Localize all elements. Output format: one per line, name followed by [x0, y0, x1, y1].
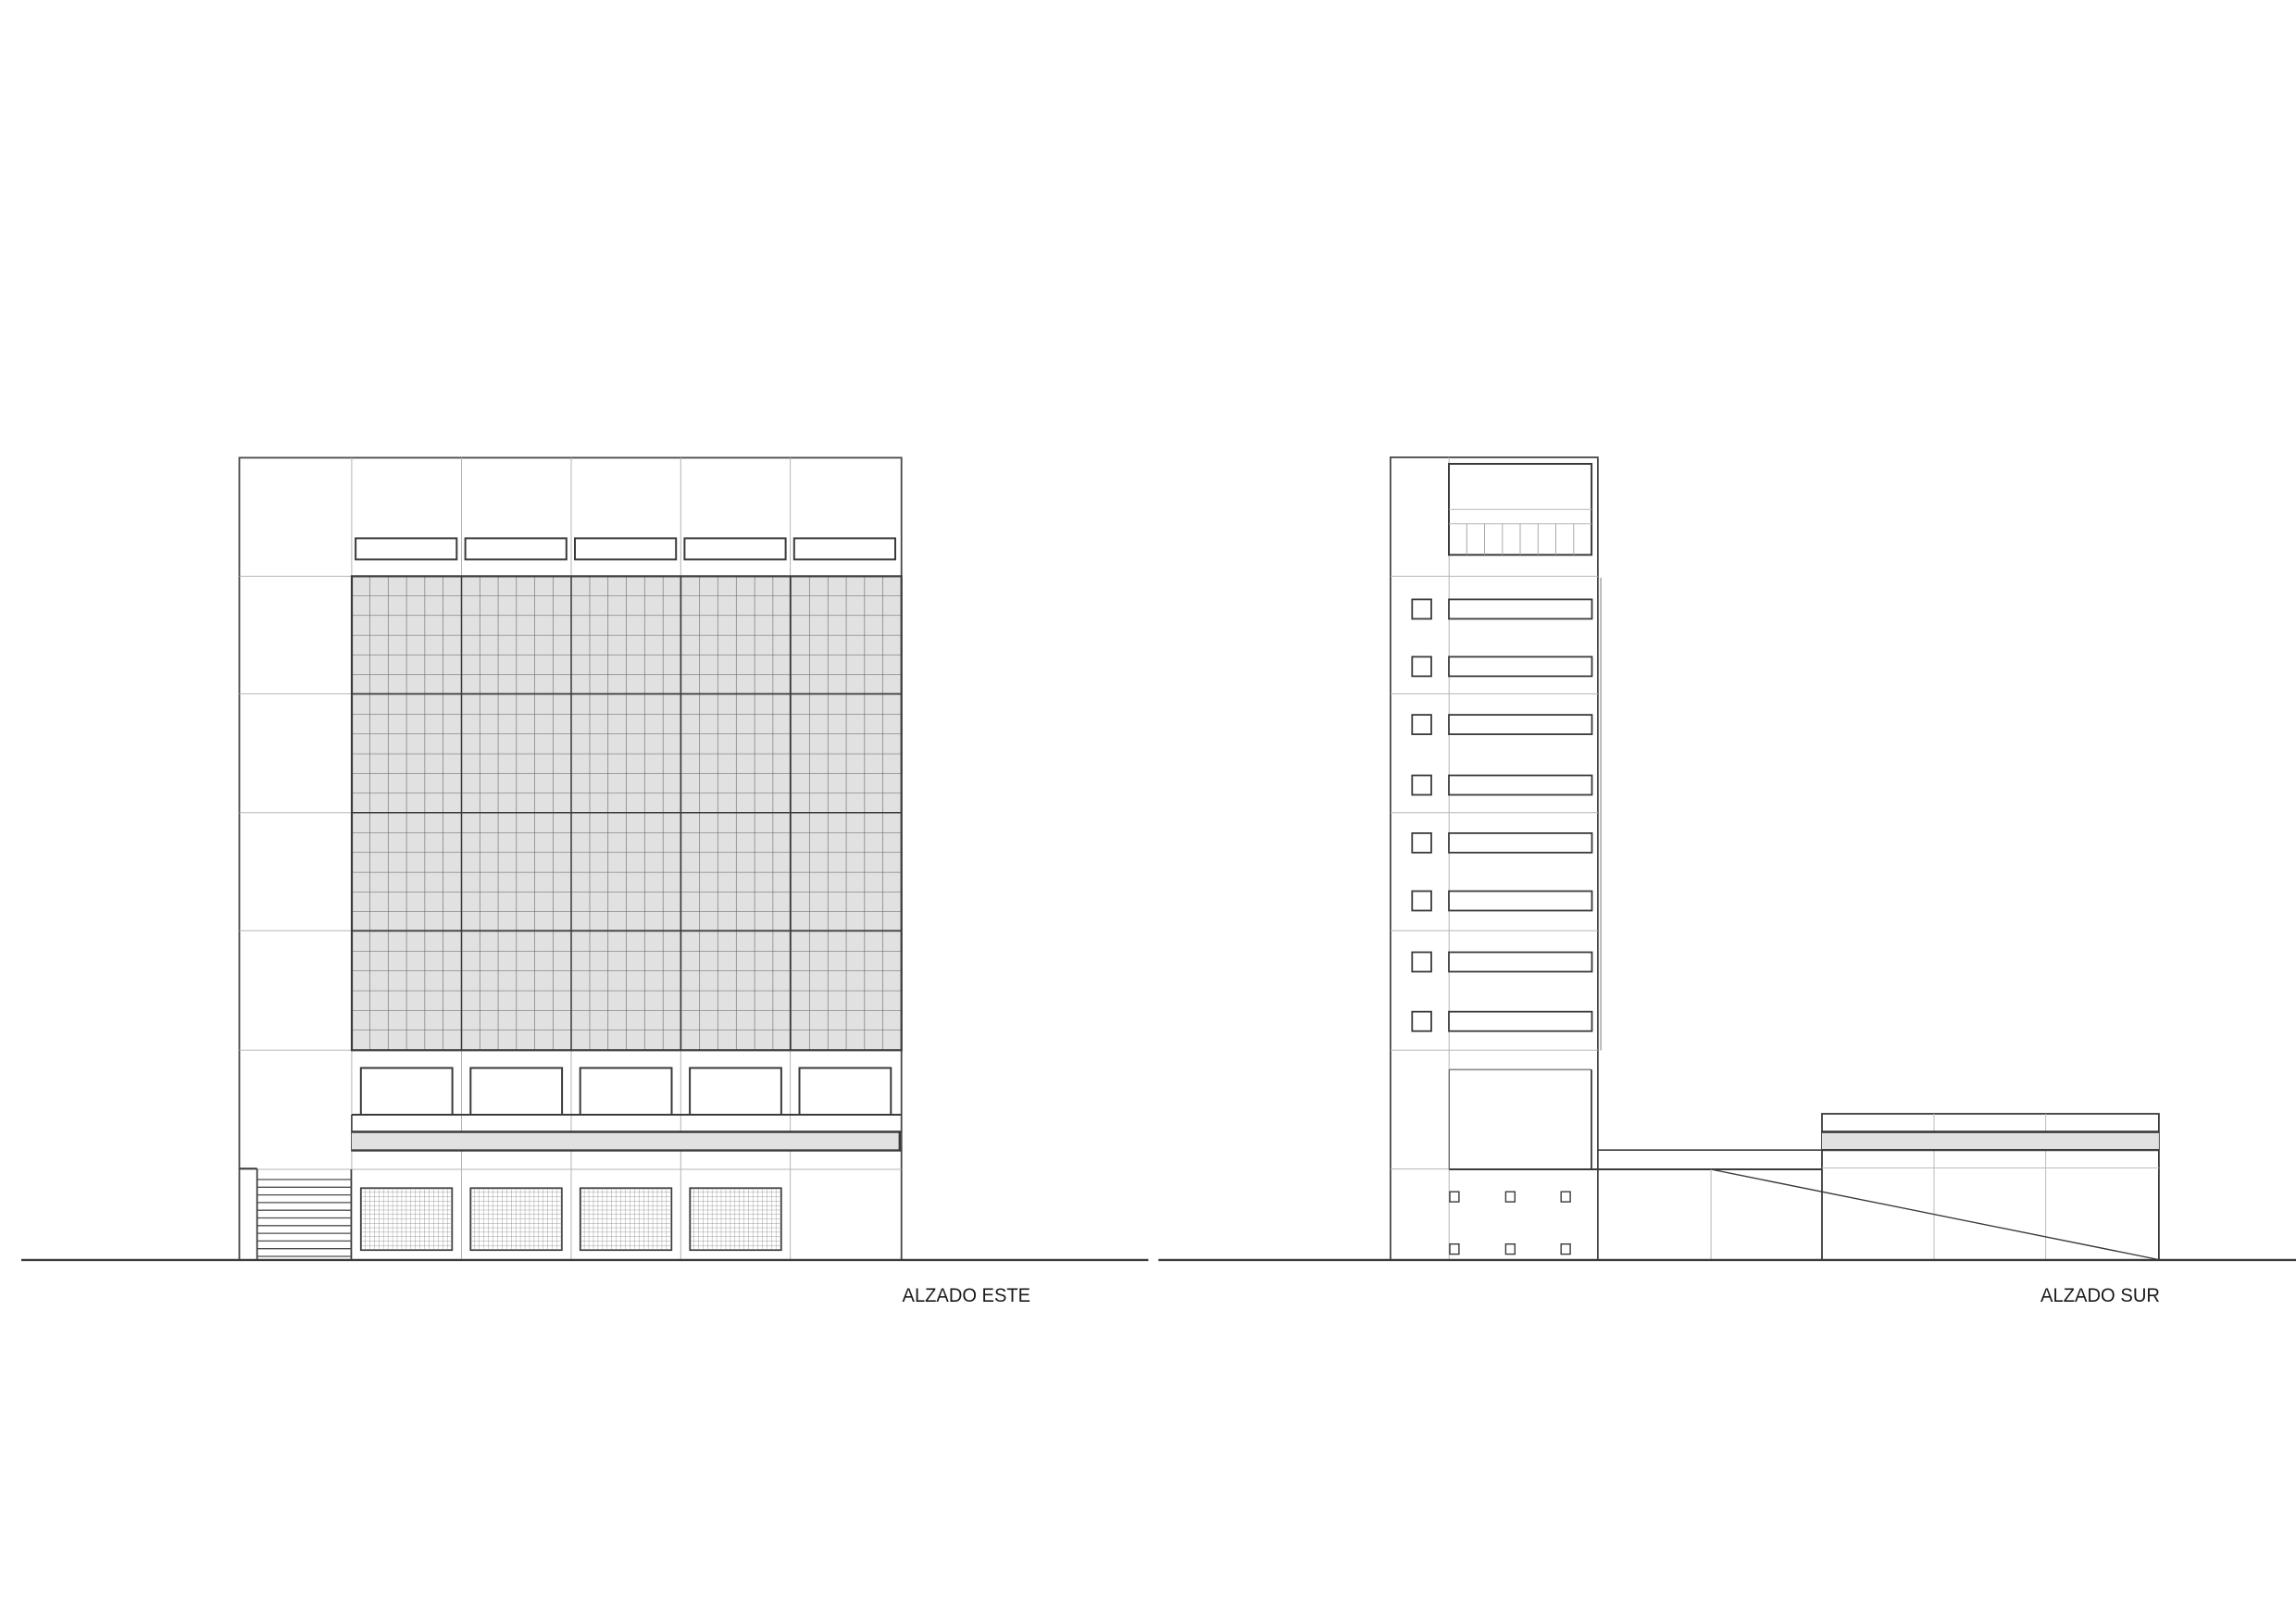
svg-text:ALZADO ESTE: ALZADO ESTE	[903, 1285, 1031, 1306]
svg-text:ALZADO SUR: ALZADO SUR	[2040, 1285, 2160, 1306]
